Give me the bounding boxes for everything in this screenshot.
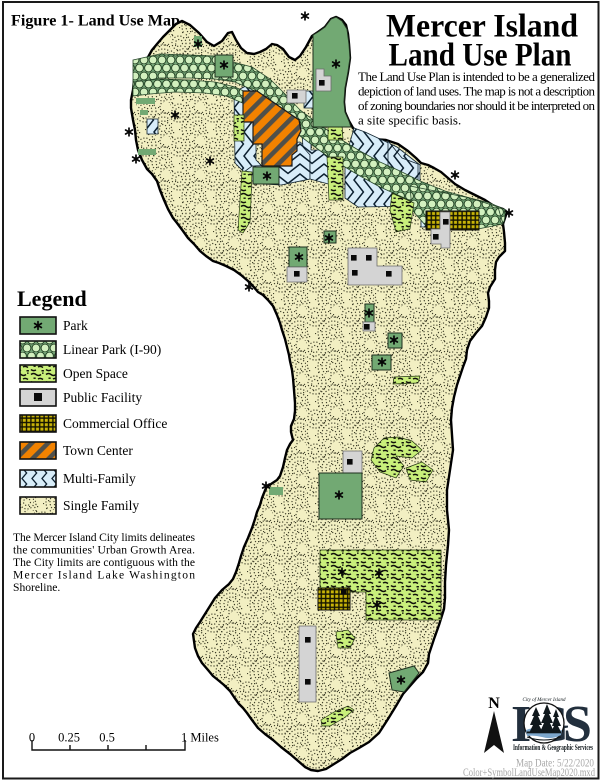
svg-text:Legend: Legend — [17, 286, 87, 311]
svg-text:The City limits are contiguous: The City limits are contiguous with the — [13, 556, 195, 569]
svg-text:1 Miles: 1 Miles — [181, 731, 219, 745]
svg-text:the communities' Urban Growt: the communities' Urban Growth Area. — [13, 544, 195, 557]
svg-text:of zoning boundaries nor shoul: of zoning boundaries nor should it be in… — [358, 98, 596, 113]
svg-text:Town Center: Town Center — [63, 443, 133, 458]
svg-text:The Land Use Plan is intended: The Land Use Plan is intended to be a ge… — [358, 69, 596, 84]
svg-text:Figure 1- Land Use Map: Figure 1- Land Use Map — [11, 13, 180, 30]
svg-text:Mercer Island Lake Was: Mercer Island Lake Washington — [13, 569, 195, 582]
svg-text:City of Mercer Island: City of Mercer Island — [522, 698, 566, 703]
svg-text:Information & Geographic Servi: Information & Geographic Services — [513, 743, 593, 752]
svg-text:The Mercer Island City limits: The Mercer Island City limits delineates — [13, 531, 195, 544]
svg-text:Park: Park — [63, 318, 88, 333]
svg-text:Color+SymbolLandUseMap2020.mxd: Color+SymbolLandUseMap2020.mxd — [463, 765, 595, 779]
svg-text:Single Family: Single Family — [63, 498, 139, 513]
svg-text:N: N — [488, 695, 500, 712]
svg-text:Public Facility: Public Facility — [63, 390, 142, 405]
svg-text:Commercial Office: Commercial Office — [63, 416, 167, 431]
svg-text:depiction of land uses. The ma: depiction of land uses. The map is not a… — [358, 84, 596, 99]
svg-text:0.25: 0.25 — [58, 731, 80, 745]
svg-text:Shoreline.: Shoreline. — [13, 581, 60, 594]
svg-text:Multi-Family: Multi-Family — [63, 471, 136, 486]
svg-text:Linear Park (I-90): Linear Park (I-90) — [63, 342, 161, 357]
svg-text:Open Space: Open Space — [63, 366, 128, 381]
svg-text:0.5: 0.5 — [99, 731, 115, 745]
svg-text:a site specific basis.: a site specific basis. — [358, 113, 461, 128]
